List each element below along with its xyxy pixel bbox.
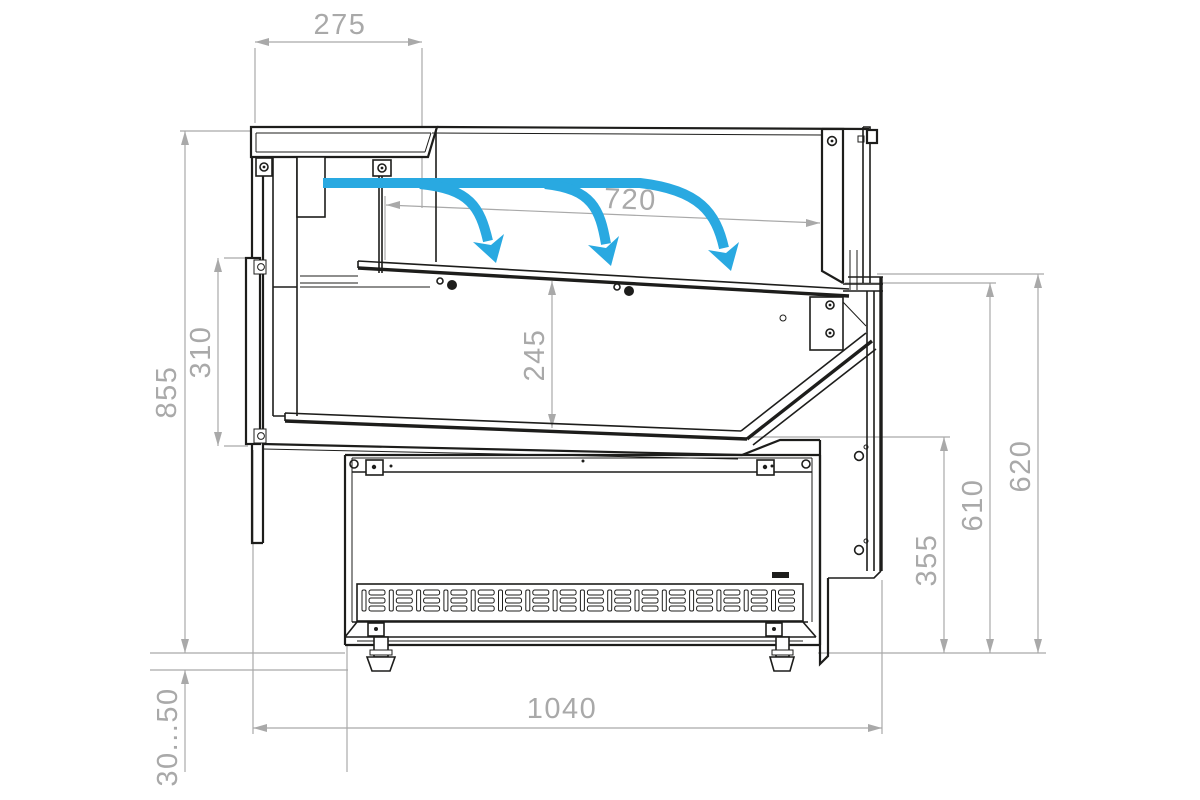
vent-slot — [396, 606, 412, 611]
vent-slot — [396, 598, 412, 603]
vent-slot — [369, 606, 385, 611]
dimension-front-height-outer: 620 — [877, 274, 1044, 653]
arrowhead-icon — [1034, 274, 1042, 288]
vent-slot — [580, 590, 584, 611]
vent-slot — [424, 606, 440, 611]
vent-slot — [506, 598, 522, 603]
vent-slot — [506, 606, 522, 611]
vent-slot — [717, 590, 721, 611]
vent-slot — [533, 590, 549, 595]
dimension-rear-door-height: 310 — [185, 258, 248, 446]
arrowhead-icon — [986, 283, 994, 297]
vent-slot — [396, 590, 412, 595]
vent-slot — [587, 598, 603, 603]
vent-slot — [424, 590, 440, 595]
arrowhead-icon — [806, 219, 820, 227]
vent-slot — [451, 598, 467, 603]
vent-slot — [389, 590, 393, 611]
dimension-label: 610 — [957, 479, 989, 532]
technical-drawing-page: 275 720 855 310 — [0, 0, 1200, 800]
dimension-well-depth: 245 — [519, 281, 556, 428]
base-unit — [345, 455, 820, 645]
dimension-overall-height: 855 — [151, 131, 251, 653]
right-skirt — [820, 440, 828, 664]
vent-slot — [533, 598, 549, 603]
vent-slot — [553, 590, 557, 611]
arrowhead-icon — [181, 670, 189, 684]
arrowhead-icon — [408, 38, 422, 46]
vent-slot — [424, 598, 440, 603]
vent-slot — [697, 606, 713, 611]
vent-slot — [587, 590, 603, 595]
front-panel — [772, 277, 881, 578]
vent-slot — [560, 606, 576, 611]
canopy — [251, 127, 437, 157]
vent-slot — [724, 590, 740, 595]
vent-slot — [478, 598, 494, 603]
vent-slot — [724, 598, 740, 603]
vent-slot — [444, 590, 448, 611]
vent-slot — [608, 590, 612, 611]
vent-slot — [669, 606, 685, 611]
vent-slot — [587, 606, 603, 611]
front-glass-frame — [822, 127, 883, 291]
airflow-arrow-icon — [323, 183, 724, 248]
arrowhead-icon — [548, 414, 556, 428]
vent-slot — [669, 598, 685, 603]
arrowhead-icon — [1034, 639, 1042, 653]
vent-slot — [560, 598, 576, 603]
vent-slot — [751, 598, 767, 603]
vent-slot — [642, 606, 658, 611]
display-counter-section-drawing: 275 720 855 310 — [0, 0, 1200, 800]
vent-slot — [451, 590, 467, 595]
vent-slot — [417, 590, 421, 611]
vent-slot — [615, 590, 631, 595]
vent-slot — [635, 590, 639, 611]
vent-slot — [772, 590, 776, 611]
arrowhead-icon — [253, 724, 267, 732]
well-front-diagonal — [741, 333, 876, 445]
dimension-leg-adjustment: 30...50 — [152, 670, 189, 787]
arrowhead-icon — [868, 724, 882, 732]
vent-slot — [744, 590, 748, 611]
vent-slot — [478, 590, 494, 595]
vent-slot — [451, 606, 467, 611]
dimension-label: 245 — [519, 329, 551, 382]
vent-slot — [642, 598, 658, 603]
adjustable-feet — [367, 637, 794, 671]
dimension-label: 30...50 — [152, 687, 184, 786]
arrowhead-icon — [214, 258, 222, 272]
arrowhead-icon — [940, 639, 948, 653]
vent-slot — [369, 590, 385, 595]
vent-slot — [615, 606, 631, 611]
dimension-label: 310 — [185, 326, 217, 379]
vent-slot — [499, 590, 503, 611]
dimension-label: 1040 — [527, 693, 598, 725]
vent-slot — [662, 590, 666, 611]
vent-slot — [697, 598, 713, 603]
vent-slot — [615, 598, 631, 603]
dimension-layer: 275 720 855 310 — [150, 9, 1046, 787]
vent-slot — [362, 590, 366, 611]
vent-slot — [560, 590, 576, 595]
arrowhead-icon — [940, 437, 948, 451]
vent-slot — [369, 598, 385, 603]
vent-slot — [779, 590, 795, 595]
dimension-label: 275 — [314, 9, 367, 41]
display-deck — [358, 261, 849, 296]
vent-slot — [478, 606, 494, 611]
vent-grille — [357, 584, 803, 621]
vent-slot — [724, 606, 740, 611]
vent-slot — [697, 590, 713, 595]
vent-slot — [642, 590, 658, 595]
airflow-arrow-icon — [545, 184, 606, 244]
arrowhead-icon — [181, 639, 189, 653]
vent-grille-slots — [362, 590, 795, 611]
arrowhead-icon — [255, 38, 269, 46]
cabinet-linework — [246, 127, 883, 671]
vent-slot — [779, 606, 795, 611]
arrowhead-icon — [548, 281, 556, 295]
airflow-arrow-icon — [420, 184, 488, 241]
vent-slot — [669, 590, 685, 595]
vent-slot — [751, 606, 767, 611]
dimension-label: 620 — [1005, 440, 1037, 493]
dimension-label: 855 — [151, 366, 183, 419]
vent-slot — [779, 598, 795, 603]
arrowhead-icon — [986, 639, 994, 653]
vent-slot — [690, 590, 694, 611]
left-foot — [367, 637, 395, 671]
counter-underside — [263, 440, 820, 459]
datum-lines — [150, 646, 1046, 772]
vent-slot — [471, 590, 475, 611]
dimension-label: 355 — [911, 534, 943, 587]
arrowhead-icon — [386, 201, 400, 209]
right-foot — [770, 637, 794, 671]
vent-slot — [506, 590, 522, 595]
vent-slot — [533, 606, 549, 611]
machine-compartment — [256, 157, 430, 416]
vent-slot — [526, 590, 530, 611]
arrowhead-icon — [181, 131, 189, 145]
vent-slot — [751, 590, 767, 595]
arrowhead-icon — [214, 432, 222, 446]
